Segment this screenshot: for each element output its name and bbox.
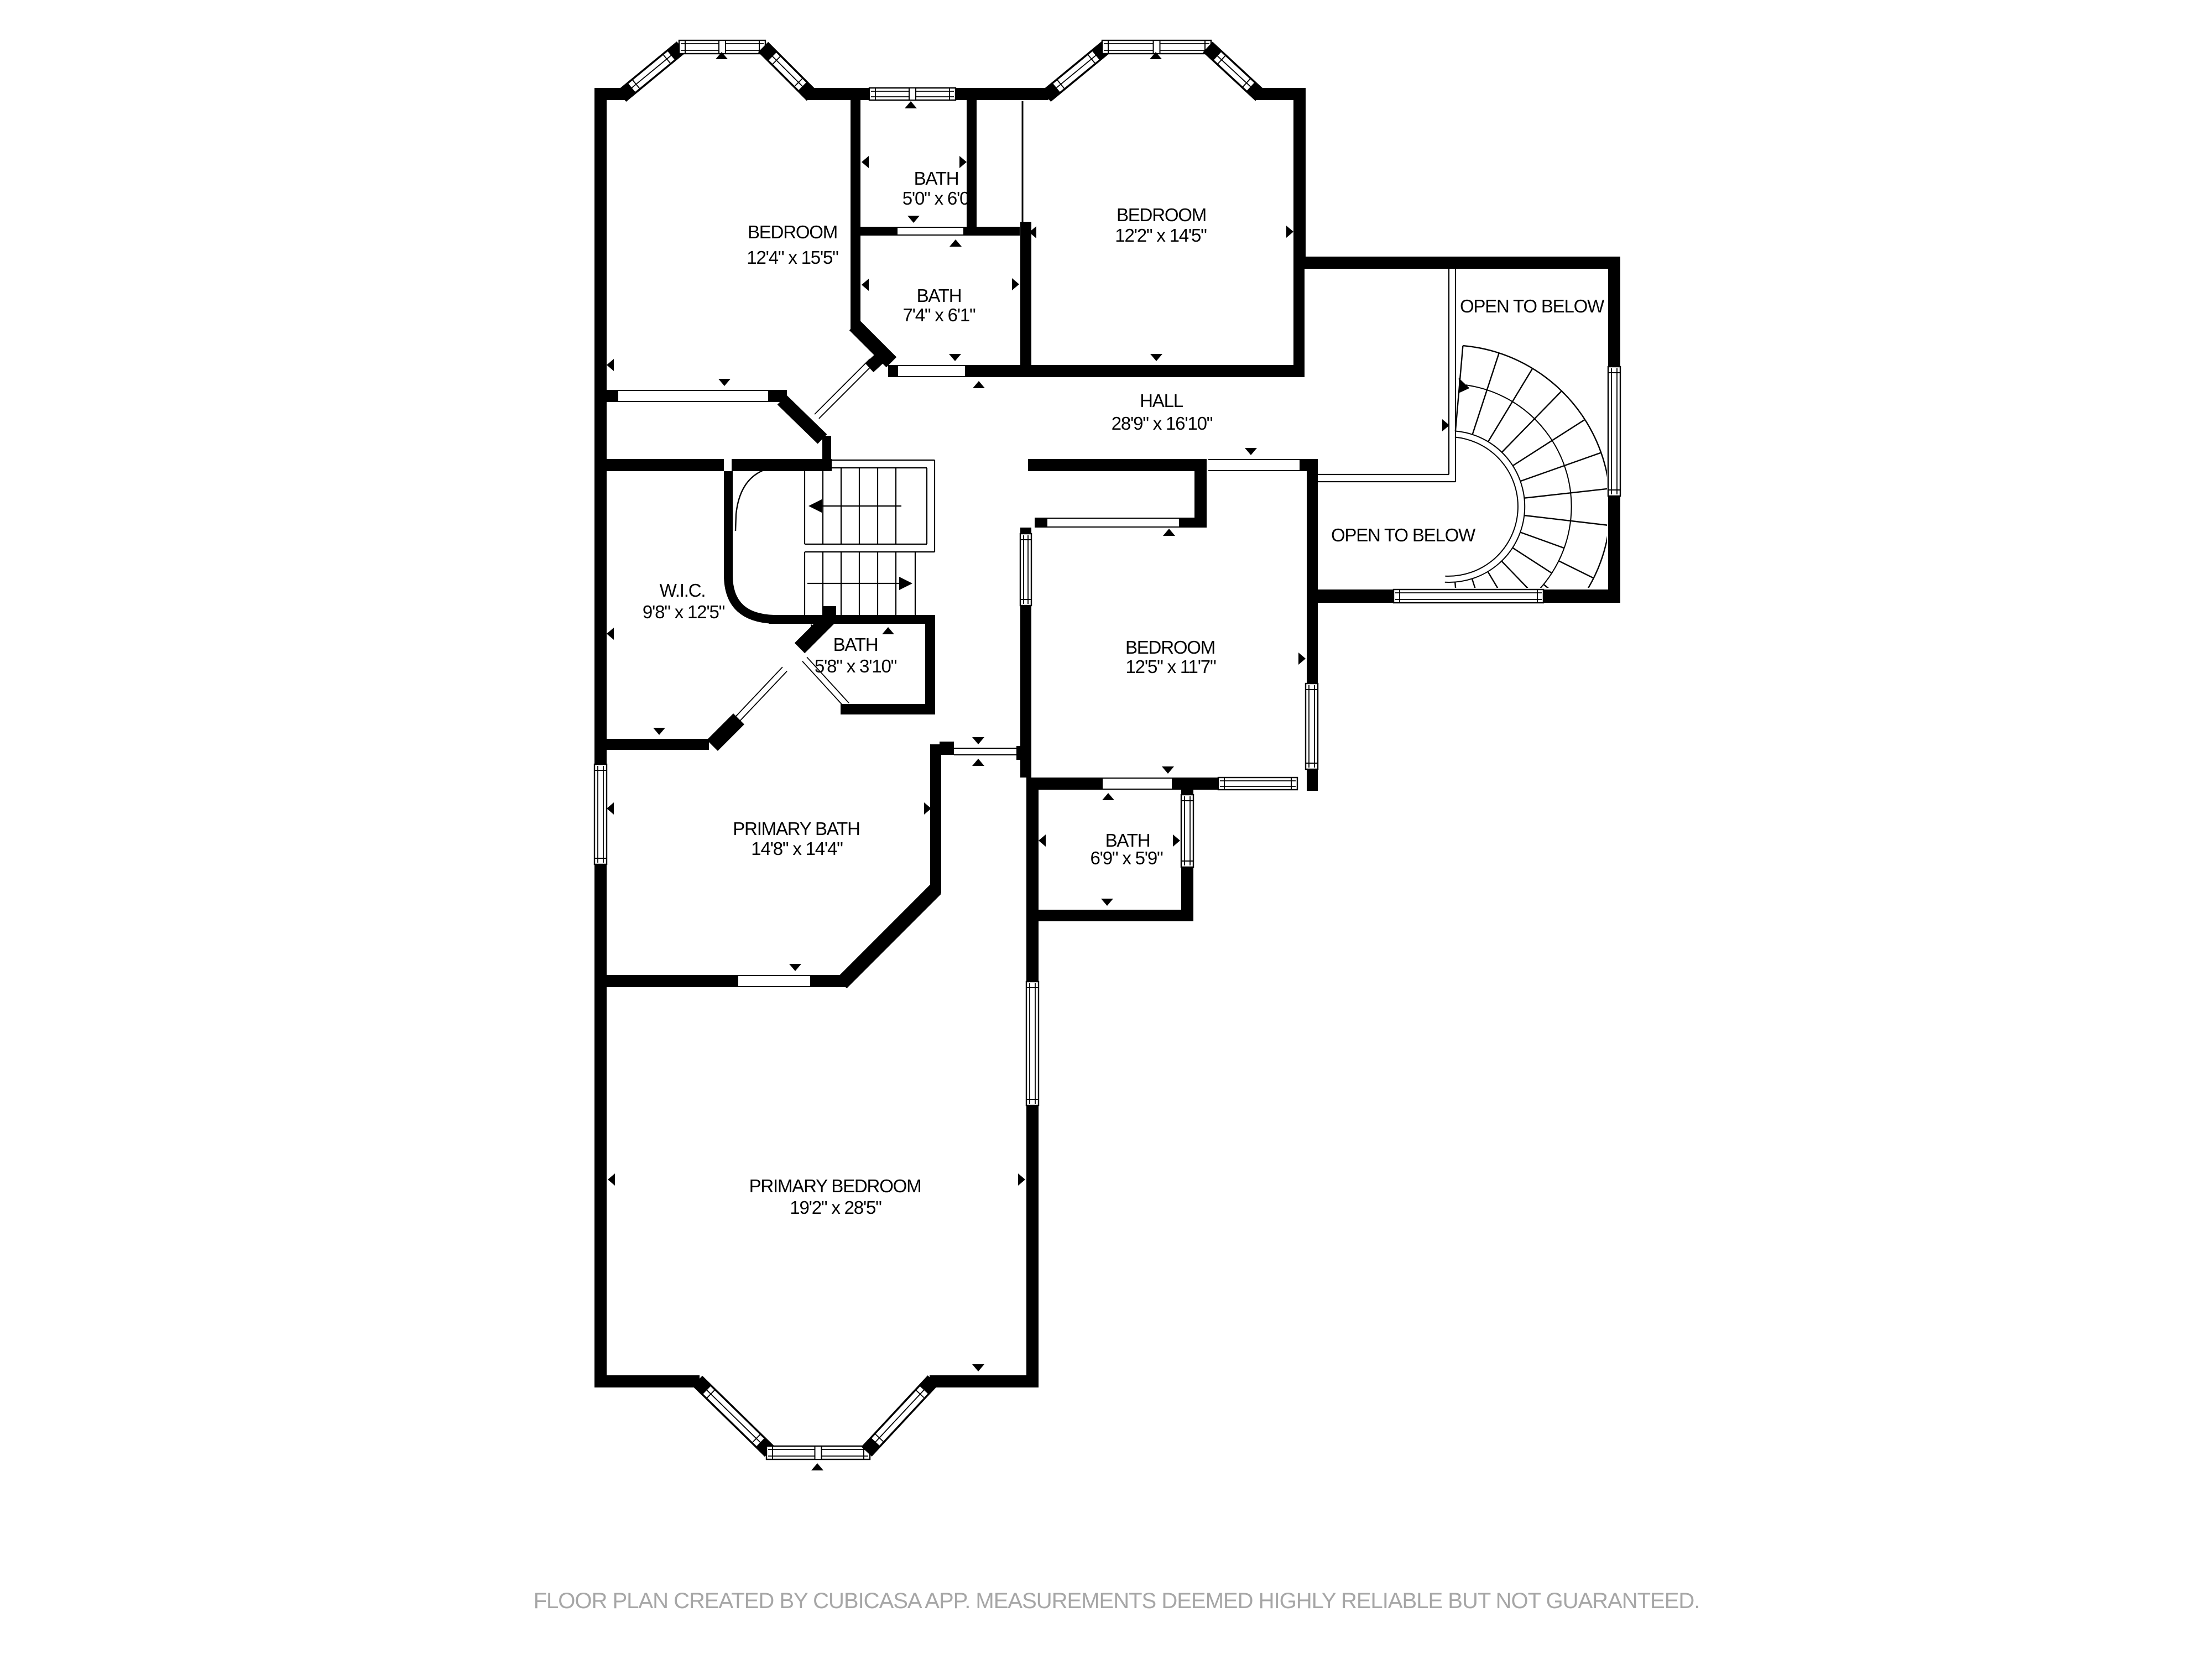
svg-text:BATH: BATH: [917, 285, 962, 306]
svg-text:HALL: HALL: [1140, 390, 1183, 411]
svg-text:BATH: BATH: [833, 634, 878, 655]
svg-text:BEDROOM: BEDROOM: [748, 222, 837, 242]
svg-text:PRIMARY BEDROOM: PRIMARY BEDROOM: [749, 1176, 921, 1196]
svg-text:BEDROOM: BEDROOM: [1125, 637, 1215, 658]
svg-text:W.I.C.: W.I.C.: [660, 580, 706, 601]
svg-text:14'8" x 14'4": 14'8" x 14'4": [751, 838, 843, 859]
svg-text:5'0" x 6'0: 5'0" x 6'0: [902, 188, 969, 208]
svg-text:5'8" x 3'10": 5'8" x 3'10": [815, 656, 897, 676]
svg-text:12'4" x 15'5": 12'4" x 15'5": [747, 247, 838, 268]
svg-text:OPEN TO BELOW: OPEN TO BELOW: [1331, 525, 1476, 545]
svg-text:9'8" x 12'5": 9'8" x 12'5": [643, 602, 725, 622]
svg-text:12'2" x 14'5": 12'2" x 14'5": [1115, 225, 1207, 246]
svg-text:BEDROOM: BEDROOM: [1117, 205, 1206, 225]
svg-text:6'9" x 5'9": 6'9" x 5'9": [1090, 848, 1163, 868]
svg-text:12'5" x 11'7": 12'5" x 11'7": [1126, 656, 1216, 677]
svg-text:7'4" x 6'1": 7'4" x 6'1": [902, 305, 975, 325]
svg-text:19'2" x 28'5": 19'2" x 28'5": [790, 1197, 881, 1218]
svg-text:FLOOR PLAN CREATED BY CUBICASA: FLOOR PLAN CREATED BY CUBICASA APP. MEAS…: [534, 1589, 1700, 1613]
svg-text:28'9" x 16'10": 28'9" x 16'10": [1112, 413, 1213, 434]
svg-text:OPEN TO BELOW: OPEN TO BELOW: [1460, 296, 1605, 316]
svg-text:PRIMARY BATH: PRIMARY BATH: [733, 818, 860, 839]
svg-text:BATH: BATH: [914, 168, 959, 189]
